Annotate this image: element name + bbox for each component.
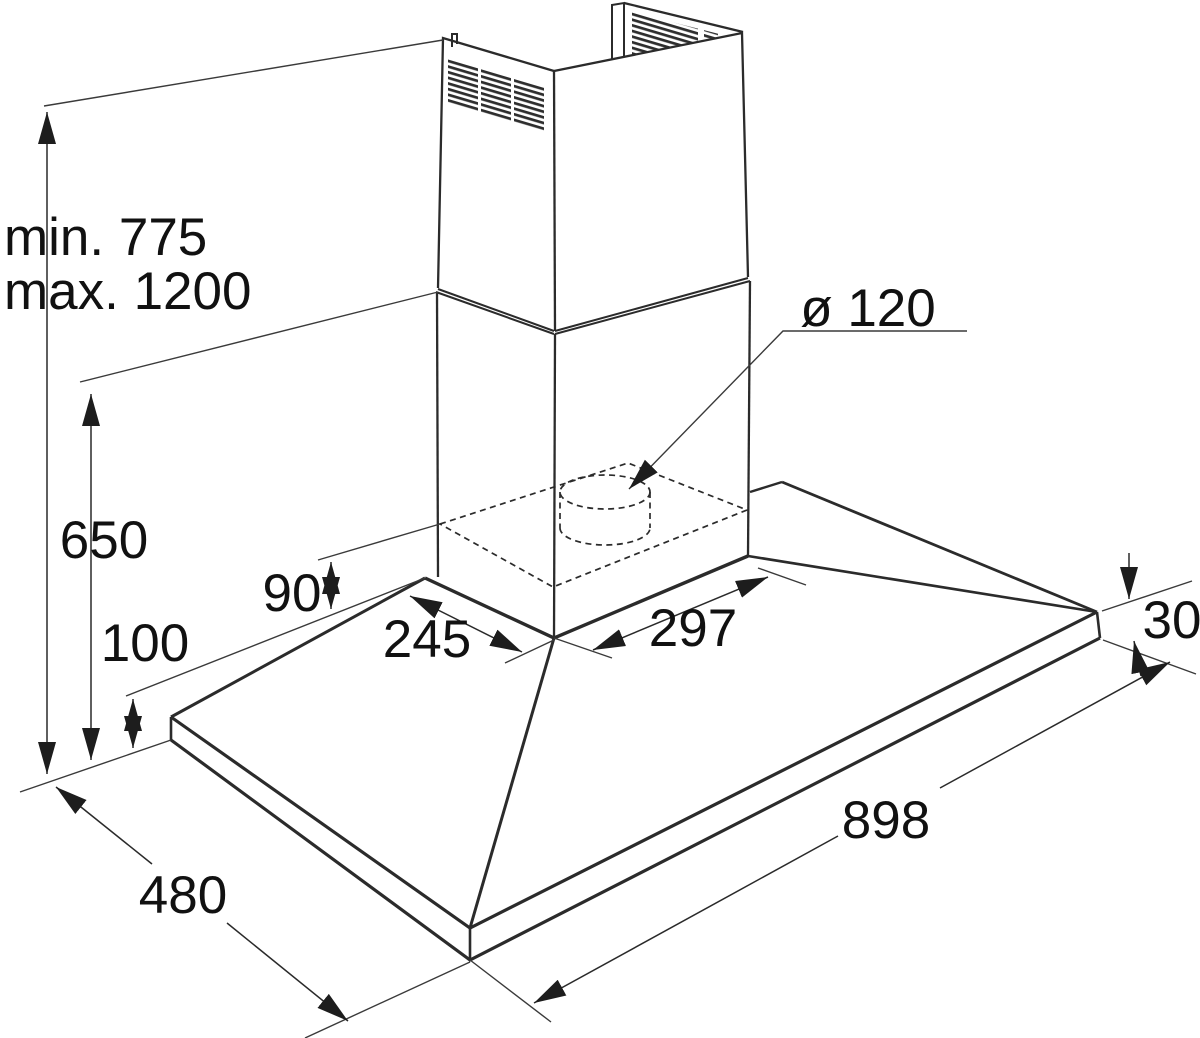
rim-thickness-label: 30: [1143, 591, 1200, 650]
dimension-297: 297: [593, 577, 768, 658]
chimney-lower-left-edge: [437, 292, 438, 577]
canopy-bottom-front-edges: [171, 638, 1100, 960]
joint-left: [438, 289, 554, 331]
dimension-duct-diameter: ø 120: [629, 279, 967, 489]
drawing-canvas: min. 775 max. 1200 650 100 90 245 297 ø …: [0, 0, 1200, 1038]
dimension-480: 480: [56, 787, 348, 1021]
dimension-30: 30: [1129, 553, 1200, 676]
ext-front-corner-480: [305, 962, 470, 1038]
ext-front-corner-right: [554, 638, 612, 658]
duct-collar-top: [560, 475, 650, 509]
ext-right-corner-297: [758, 568, 806, 585]
dimension-650: 650: [60, 394, 148, 760]
canopy-top-front-edges: [171, 612, 1097, 928]
chimney-upper-section: [436, 3, 750, 334]
dimline-480-left: [56, 787, 152, 864]
canopy-depth-label: 480: [139, 866, 227, 925]
duct-collar: [560, 475, 650, 545]
body-width-label: 297: [649, 599, 737, 658]
rear-offset-label: 100: [101, 614, 189, 673]
dimline-898-right: [940, 662, 1170, 788]
dimline-480-right: [227, 923, 348, 1021]
chimney-back-shell: [612, 3, 743, 59]
back-shell-left-strip: [612, 3, 624, 59]
body-height-label: 90: [263, 564, 322, 623]
dimline-30-bottom-arrow: [1134, 641, 1141, 676]
dimension-min-max-height: min. 775 max. 1200: [4, 112, 251, 774]
body-depth-label: 245: [383, 610, 471, 669]
canopy-back-right-edge: [782, 482, 1097, 612]
dimension-245: 245: [383, 596, 522, 669]
max-height-label: max. 1200: [4, 262, 251, 321]
dimension-898: 898: [534, 662, 1170, 1003]
chimney-height-label: 650: [60, 511, 148, 570]
chimney-lower-right-edge: [748, 281, 750, 556]
min-height-label: min. 775: [4, 208, 207, 267]
leader-duct-diameter: [629, 331, 967, 489]
duct-diameter-label: ø 120: [800, 279, 936, 338]
joint-lower-lip: [436, 281, 750, 334]
canopy-corner-edges: [171, 612, 1100, 960]
canopy-fold-right: [748, 556, 1097, 612]
vent-column-2-icon: [481, 68, 511, 123]
ext-chimney-top: [44, 40, 443, 106]
canopy-width-label: 898: [842, 791, 930, 850]
joint-right: [555, 278, 748, 331]
duct-collar-sides: [560, 492, 650, 528]
dimension-100: 100: [101, 614, 189, 748]
vent-column-1-icon: [448, 58, 478, 113]
ext-body-top: [318, 524, 440, 560]
dimline-898-left: [534, 836, 838, 1003]
ext-front-corner-898: [470, 960, 551, 1022]
chimney-upper-right-face: [554, 33, 748, 277]
canopy-fold-front: [470, 638, 554, 928]
duct-collar-bottom: [560, 528, 650, 545]
vent-column-3-icon: [514, 78, 544, 133]
canopy-back-edge-segment: [750, 482, 782, 492]
body-top-hidden-outline: [440, 463, 747, 587]
chimney-upper-front-edge: [554, 71, 555, 331]
ext-canopy-bottom-back: [20, 740, 171, 792]
chimney-lower-section: [437, 281, 750, 638]
hood-dimension-drawing: min. 775 max. 1200 650 100 90 245 297 ø …: [0, 0, 1200, 1038]
vent-grille-left: [448, 58, 544, 133]
dimension-90: 90: [263, 562, 331, 623]
